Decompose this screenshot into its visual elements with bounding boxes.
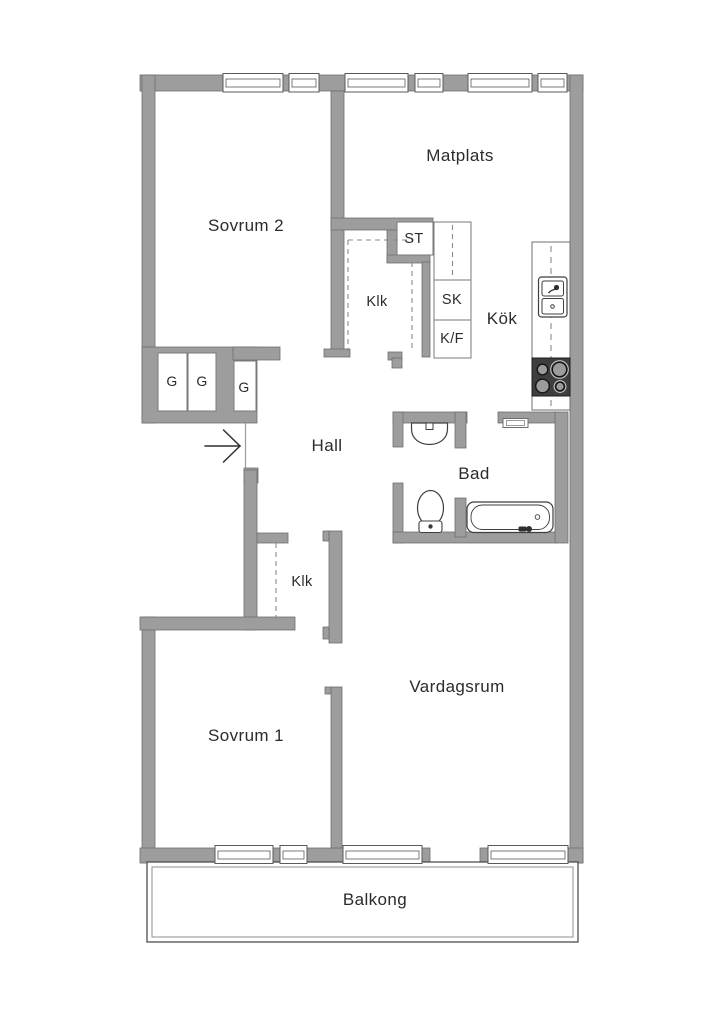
- window: [280, 846, 307, 864]
- stove-icon: [532, 358, 570, 396]
- wall: [140, 617, 295, 630]
- window: [215, 846, 273, 864]
- room-label-bad: Bad: [458, 464, 489, 484]
- floor-plan-drawing: [0, 0, 724, 1024]
- wall: [257, 533, 288, 543]
- room-label-balkong: Balkong: [343, 890, 407, 910]
- closet-label-klk-lower: Klk: [291, 574, 312, 590]
- window: [538, 74, 567, 93]
- bathtub-icon: [467, 502, 553, 533]
- closet-label-klk-upper: Klk: [366, 294, 387, 310]
- wall: [392, 358, 402, 368]
- room-label-vardagsrum: Vardagsrum: [409, 677, 504, 697]
- window: [415, 74, 443, 93]
- wall: [393, 532, 557, 543]
- wardrobe-label-g1: G: [166, 373, 177, 389]
- floor-plan: Sovrum 2 Matplats Kök Hall Bad Sovrum 1 …: [0, 0, 724, 1024]
- wall: [555, 412, 568, 543]
- cabinet-label-sk: SK: [442, 292, 462, 308]
- wall: [325, 687, 331, 694]
- washbasin-icon: [412, 423, 448, 445]
- wall: [393, 412, 403, 447]
- window: [343, 846, 422, 864]
- wall: [570, 75, 583, 863]
- room-label-sovrum2: Sovrum 2: [208, 216, 284, 236]
- wall-shelf: [503, 419, 528, 428]
- wardrobe-label-g2: G: [196, 373, 207, 389]
- window: [345, 74, 408, 93]
- toilet-icon: [418, 491, 444, 533]
- entrance-arrow-icon: [205, 430, 240, 462]
- wall: [455, 498, 466, 537]
- wall: [233, 347, 280, 360]
- kitchen-sink-icon: [539, 277, 568, 317]
- cabinet-label-kf: K/F: [440, 331, 464, 347]
- wall: [323, 531, 329, 541]
- window: [223, 74, 283, 93]
- wall: [329, 531, 342, 643]
- window: [488, 846, 568, 864]
- window: [289, 74, 319, 93]
- room-label-kok: Kök: [487, 309, 518, 329]
- room-label-matplats: Matplats: [426, 146, 493, 166]
- wardrobe-label-g3: G: [238, 379, 249, 395]
- wall: [324, 349, 350, 357]
- wall: [323, 627, 329, 639]
- cabinet-label-st: ST: [404, 231, 423, 247]
- wall: [244, 470, 257, 630]
- wall: [142, 617, 155, 863]
- wall: [331, 687, 342, 848]
- walls: [140, 75, 583, 863]
- window: [468, 74, 532, 93]
- room-label-sovrum1: Sovrum 1: [208, 726, 284, 746]
- wall: [455, 412, 466, 448]
- room-label-hall: Hall: [312, 436, 343, 456]
- wall: [422, 262, 430, 357]
